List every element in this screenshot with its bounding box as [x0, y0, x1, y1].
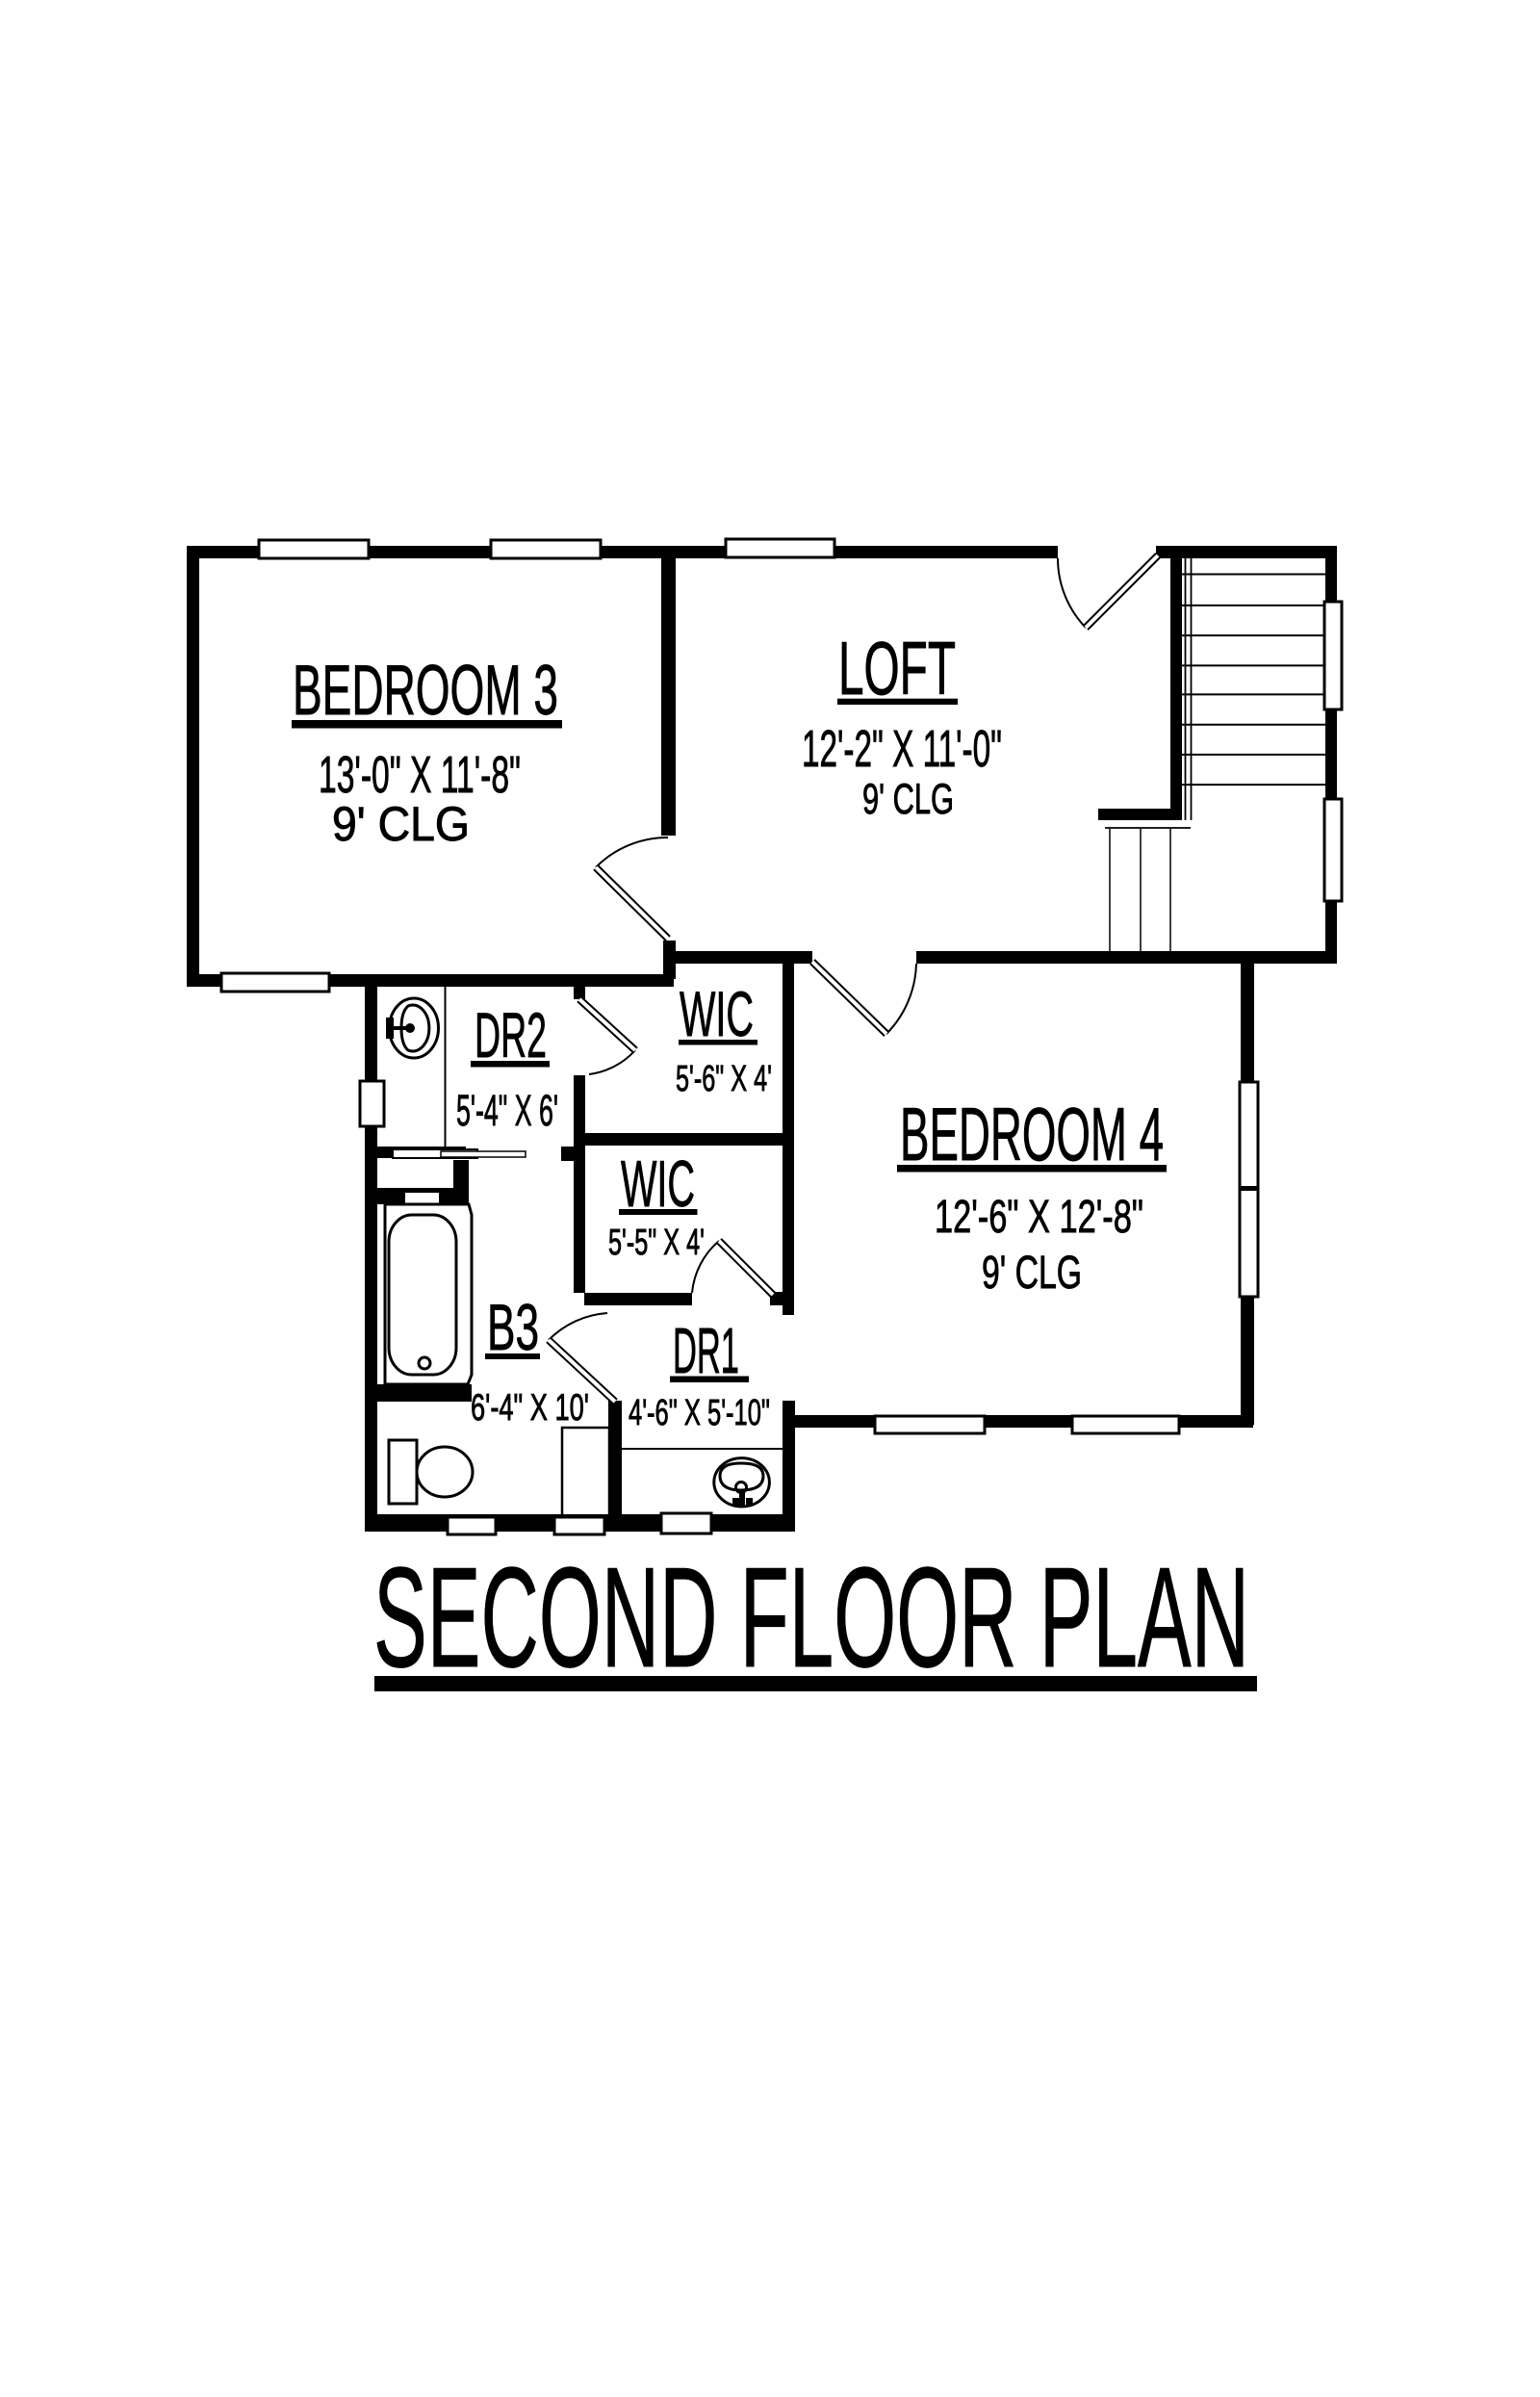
svg-text:4'-6" X 5'-10": 4'-6" X 5'-10": [629, 1393, 770, 1433]
svg-text:6'-4" X 10': 6'-4" X 10': [471, 1387, 589, 1429]
svg-text:LOFT: LOFT: [838, 626, 956, 710]
svg-text:DR2: DR2: [475, 999, 547, 1070]
svg-text:5'-4" X 6': 5'-4" X 6': [456, 1086, 558, 1135]
svg-text:BEDROOM 3: BEDROOM 3: [293, 650, 558, 730]
svg-text:SECOND FLOOR PLAN: SECOND FLOOR PLAN: [373, 1538, 1249, 1697]
svg-text:9' CLG: 9' CLG: [332, 797, 470, 851]
svg-text:12'-6" X 12'-8": 12'-6" X 12'-8": [935, 1192, 1143, 1243]
svg-text:BEDROOM 4: BEDROOM 4: [900, 1092, 1164, 1176]
svg-text:5'-6" X 4': 5'-6" X 4': [676, 1059, 772, 1099]
svg-text:9' CLG: 9' CLG: [982, 1248, 1082, 1299]
svg-text:B3: B3: [487, 1291, 539, 1364]
svg-text:9' CLG: 9' CLG: [862, 776, 954, 823]
svg-text:WIC: WIC: [680, 978, 754, 1049]
svg-text:12'-2" X 11'-0": 12'-2" X 11'-0": [802, 720, 1002, 778]
svg-text:13'-0" X 11'-8": 13'-0" X 11'-8": [319, 746, 521, 804]
svg-text:5'-5" X 4': 5'-5" X 4': [608, 1223, 705, 1263]
